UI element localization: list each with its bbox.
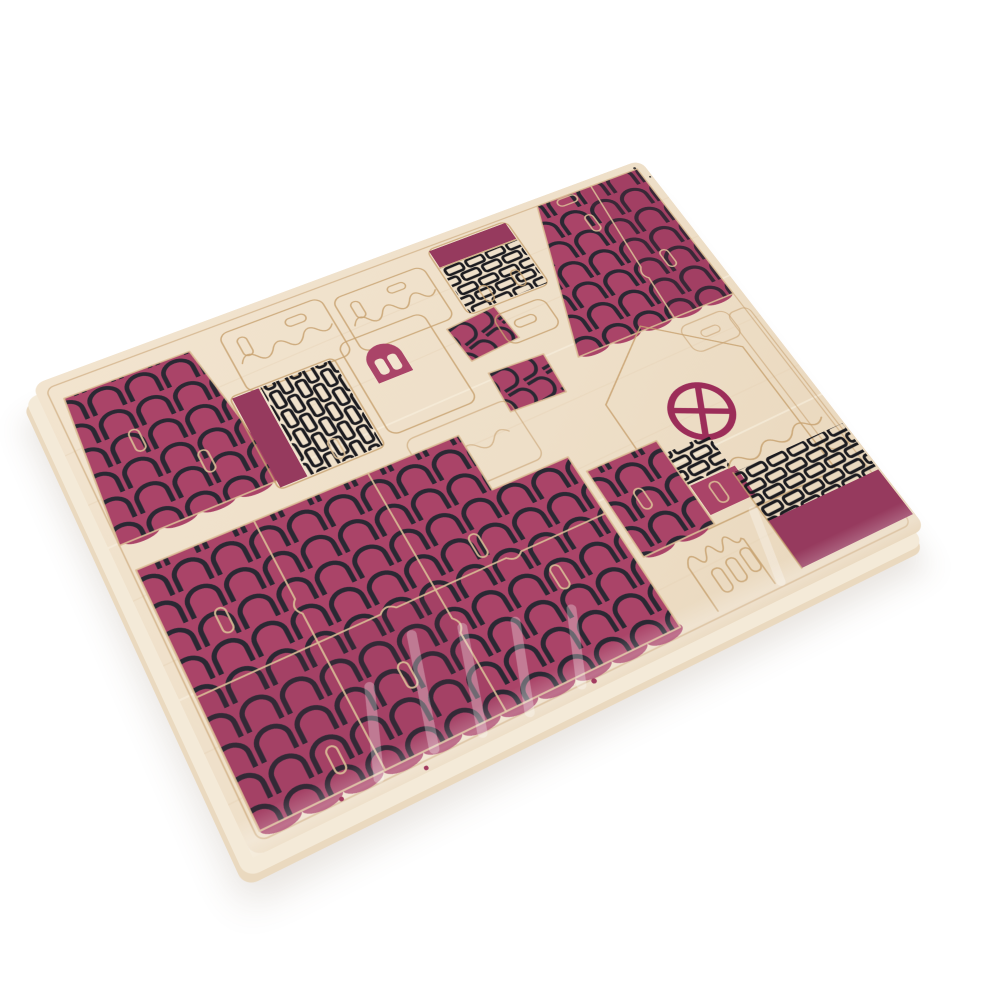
plywood-board [32,160,926,858]
product-photo [0,0,1002,1002]
board-graphic [32,160,926,858]
